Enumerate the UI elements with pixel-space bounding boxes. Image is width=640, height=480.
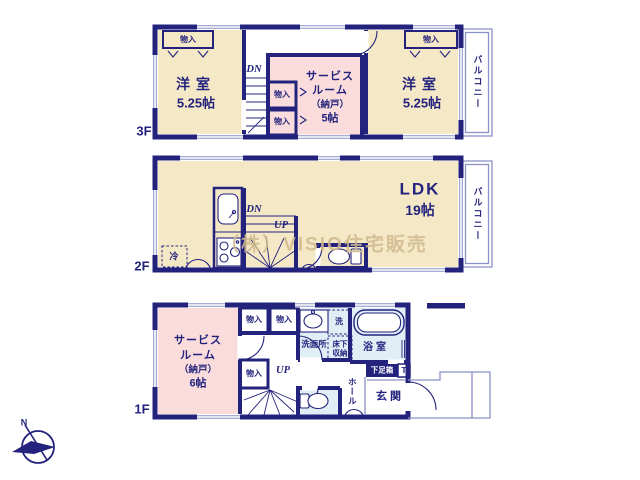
- compass-north-label: N: [21, 419, 28, 428]
- closet-label-3f-mid-bottom: 物入: [274, 118, 290, 126]
- room-label-service-3f-1: サービス: [306, 72, 354, 83]
- stairs-3f: [246, 78, 266, 133]
- closet-label-3f-mid-top: 物入: [274, 91, 290, 99]
- room-label-service-1f-1: サービス: [174, 336, 222, 347]
- shoe-cabinet-label: 下足箱: [371, 366, 394, 374]
- stairs-1f: [244, 390, 298, 415]
- room-area-western-left: 5.25帖: [177, 97, 215, 110]
- t-box-label: T: [401, 366, 406, 375]
- room-label-western-right: 洋室: [402, 77, 442, 91]
- room-label-service-3f-2: ルーム: [312, 86, 348, 97]
- stairs-up-label-1f: UP: [276, 366, 290, 377]
- entrance-porch: [406, 372, 491, 418]
- washroom-label: 洗面所: [301, 340, 327, 349]
- entrance-label: 玄関: [376, 392, 404, 403]
- closet-label-3f-right: 物入: [423, 36, 439, 44]
- hall-label: ホール: [348, 378, 357, 407]
- room-label-service-3f-3: （納戸）: [311, 100, 349, 110]
- bathroom-label: 浴室: [363, 343, 389, 353]
- floor-plan-image: 3F 洋室 5.25帖 洋室 5.25帖 サービス ルーム （納戸） 5帖 物入…: [0, 0, 640, 480]
- stairs-dn-label-2f: DN: [246, 205, 261, 216]
- balcony-label-3f: バルコニー: [473, 55, 482, 110]
- underfloor-storage-label-1: 床下: [333, 340, 348, 348]
- room-label-western-left: 洋室: [176, 77, 216, 91]
- room-area-service-1f: 6帖: [189, 379, 206, 390]
- north-compass: [12, 425, 55, 463]
- floor-label-1f: 1F: [134, 403, 149, 416]
- balcony-label-2f: バルコニー: [473, 187, 482, 242]
- closet-label-1f-top-right: 物入: [276, 316, 292, 324]
- room-area-service-3f: 5帖: [321, 114, 338, 125]
- stairs-dn-label-3f: DN: [246, 65, 261, 76]
- room-area-western-right: 5.25帖: [403, 97, 441, 110]
- laundry-label: 洗: [335, 318, 343, 326]
- watermark-text: （株）VISIO住宅販売: [220, 230, 428, 257]
- room-area-ldk: 19帖: [405, 203, 435, 217]
- room-label-service-1f-2: ルーム: [180, 351, 216, 362]
- closet-label-3f-left: 物入: [180, 36, 196, 44]
- exterior-wall-stub: [427, 303, 465, 309]
- floor-label-2f: 2F: [134, 260, 149, 273]
- room-label-service-1f-3: （納戸）: [179, 365, 217, 375]
- refrigerator-label: 冷: [169, 253, 178, 262]
- floor-label-3f: 3F: [136, 125, 151, 138]
- washroom-sink: [300, 310, 328, 332]
- toilet-1f: [300, 394, 328, 409]
- closet-label-1f-top-left: 物入: [246, 316, 262, 324]
- closet-label-1f-middle: 物入: [246, 370, 262, 378]
- underfloor-storage-label-2: 収納: [333, 349, 348, 357]
- room-label-ldk: LDK: [400, 181, 441, 198]
